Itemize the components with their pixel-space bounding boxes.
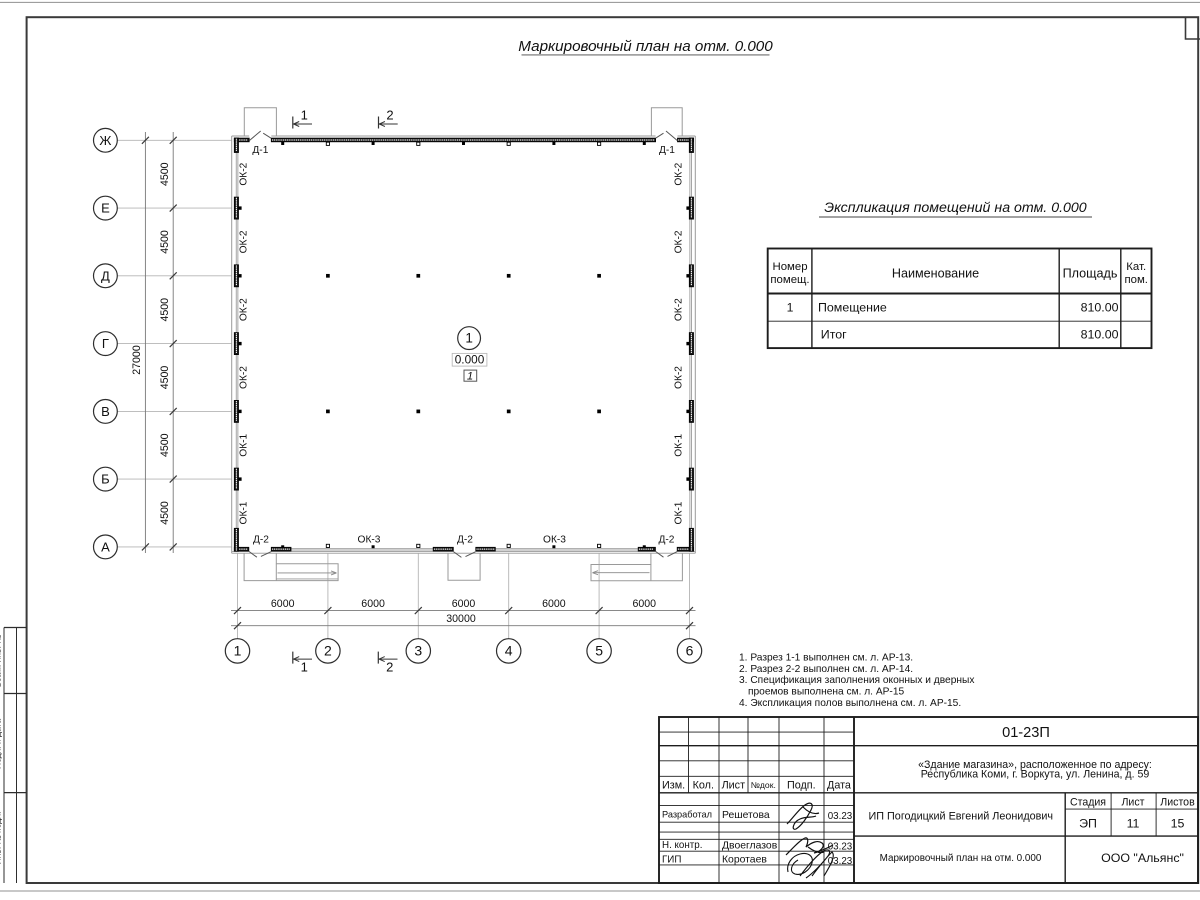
svg-text:4: 4 xyxy=(505,643,513,659)
svg-text:ОК-2: ОК-2 xyxy=(673,298,684,321)
svg-text:Д-2: Д-2 xyxy=(659,535,675,546)
svg-text:ОК-1: ОК-1 xyxy=(238,433,249,456)
svg-text:ЭП: ЭП xyxy=(1079,817,1097,831)
svg-text:Изм.: Изм. xyxy=(662,780,685,792)
svg-text:Номер: Номер xyxy=(772,261,807,273)
svg-text:810.00: 810.00 xyxy=(1081,328,1119,342)
svg-text:Д-1: Д-1 xyxy=(659,145,675,156)
svg-text:6000: 6000 xyxy=(271,598,295,610)
svg-text:2: 2 xyxy=(386,660,393,675)
svg-text:помещ.: помещ. xyxy=(770,274,809,286)
svg-text:пом.: пом. xyxy=(1124,274,1148,286)
svg-text:Итог: Итог xyxy=(821,328,847,342)
svg-text:810.00: 810.00 xyxy=(1081,301,1119,315)
svg-text:1: 1 xyxy=(467,371,473,383)
svg-text:Маркировочный план на отм. 0.0: Маркировочный план на отм. 0.000 xyxy=(880,853,1042,864)
svg-text:ОК-2: ОК-2 xyxy=(673,230,684,253)
svg-text:5: 5 xyxy=(595,643,603,659)
svg-text:Д-1: Д-1 xyxy=(252,145,268,156)
svg-text:ОК-2: ОК-2 xyxy=(238,366,249,389)
svg-text:4500: 4500 xyxy=(159,230,171,254)
svg-text:4500: 4500 xyxy=(159,501,171,525)
svg-text:1: 1 xyxy=(465,331,473,346)
svg-text:03.23: 03.23 xyxy=(828,811,853,822)
svg-text:Подп. и дата: Подп. и дата xyxy=(0,719,2,769)
svg-text:проемов выполнена см. л. АР-15: проемов выполнена см. л. АР-15 xyxy=(748,687,904,698)
svg-text:11: 11 xyxy=(1127,817,1140,831)
svg-text:Помещение: Помещение xyxy=(818,301,887,315)
svg-text:ОК-2: ОК-2 xyxy=(238,230,249,253)
svg-text:Инв. № подл.: Инв. № подл. xyxy=(0,812,2,865)
svg-text:Дата: Дата xyxy=(827,780,851,792)
svg-text:Коротаев: Коротаев xyxy=(722,855,767,866)
svg-text:ОК-1: ОК-1 xyxy=(673,433,684,456)
svg-text:2: 2 xyxy=(324,643,332,659)
svg-text:1: 1 xyxy=(301,660,308,675)
svg-text:ООО "Альянс": ООО "Альянс" xyxy=(1101,851,1184,865)
svg-text:Стадия: Стадия xyxy=(1070,797,1106,809)
svg-text:Лист: Лист xyxy=(722,780,746,792)
svg-text:1: 1 xyxy=(301,107,308,122)
svg-text:Маркировочный план на отм. 0.0: Маркировочный план на отм. 0.000 xyxy=(518,38,773,55)
svg-text:6: 6 xyxy=(686,643,694,659)
svg-text:Н. контр.: Н. контр. xyxy=(662,840,702,851)
svg-text:Д-2: Д-2 xyxy=(253,535,269,546)
svg-text:2: 2 xyxy=(386,107,393,122)
svg-text:Лист: Лист xyxy=(1121,797,1144,809)
svg-text:3. Спецификация заполнения око: 3. Спецификация заполнения оконных и две… xyxy=(739,674,974,686)
svg-text:4. Экспликация полов выполнена: 4. Экспликация полов выполнена см. л. АР… xyxy=(739,698,961,709)
svg-text:Ж: Ж xyxy=(99,133,111,148)
svg-text:ОК-1: ОК-1 xyxy=(238,501,249,524)
svg-text:ГИП: ГИП xyxy=(662,855,681,866)
svg-text:6000: 6000 xyxy=(452,598,476,610)
svg-text:6000: 6000 xyxy=(542,598,566,610)
svg-text:4500: 4500 xyxy=(159,433,171,457)
svg-text:Д: Д xyxy=(101,268,110,283)
svg-text:01-23П: 01-23П xyxy=(1002,725,1050,741)
svg-text:Наименование: Наименование xyxy=(892,267,979,281)
svg-text:3: 3 xyxy=(414,643,422,659)
svg-text:4500: 4500 xyxy=(159,162,171,186)
svg-text:03.23: 03.23 xyxy=(828,842,853,853)
svg-text:ОК-2: ОК-2 xyxy=(673,366,684,389)
svg-text:Б: Б xyxy=(101,472,110,487)
svg-text:27000: 27000 xyxy=(131,345,143,375)
svg-text:ИП Погодицкий Евгений Леонидов: ИП Погодицкий Евгений Леонидович xyxy=(869,810,1054,822)
svg-text:№док.: №док. xyxy=(751,780,776,790)
svg-text:Республика Коми, г. Воркута, у: Республика Коми, г. Воркута, ул. Ленина,… xyxy=(921,768,1150,780)
svg-text:Экспликация помещений на отм.: Экспликация помещений на отм. 0.000 xyxy=(824,200,1087,216)
svg-text:ОК-3: ОК-3 xyxy=(543,535,566,546)
svg-text:Е: Е xyxy=(101,201,110,216)
svg-text:1. Разрез 1-1 выполнен см. л.: 1. Разрез 1-1 выполнен см. л. АР-13. xyxy=(739,652,913,663)
svg-text:Кол.: Кол. xyxy=(693,780,714,792)
svg-text:1: 1 xyxy=(234,643,242,659)
svg-text:А: А xyxy=(101,540,110,555)
svg-text:4500: 4500 xyxy=(159,366,171,390)
svg-text:Двоеглазов: Двоеглазов xyxy=(722,841,778,852)
svg-text:6000: 6000 xyxy=(361,598,385,610)
svg-text:ОК-2: ОК-2 xyxy=(238,162,249,185)
svg-text:0.000: 0.000 xyxy=(455,352,485,366)
svg-text:Г: Г xyxy=(102,336,109,351)
svg-text:В: В xyxy=(101,404,110,419)
svg-text:Д-2: Д-2 xyxy=(457,535,473,546)
svg-text:Разработал: Разработал xyxy=(662,810,712,820)
svg-text:ОК-3: ОК-3 xyxy=(358,535,381,546)
svg-text:2. Разрез 2-2 выполнен см. л.: 2. Разрез 2-2 выполнен см. л. АР-14. xyxy=(739,664,913,675)
svg-text:15: 15 xyxy=(1171,817,1185,831)
svg-text:ОК-2: ОК-2 xyxy=(238,298,249,321)
svg-text:ОК-2: ОК-2 xyxy=(673,162,684,185)
svg-text:4500: 4500 xyxy=(159,298,171,322)
svg-text:Площадь: Площадь xyxy=(1063,267,1118,281)
svg-text:Решетова: Решетова xyxy=(722,810,770,821)
svg-text:1: 1 xyxy=(787,301,794,315)
svg-text:Кат.: Кат. xyxy=(1126,261,1146,273)
svg-text:ОК-1: ОК-1 xyxy=(673,501,684,524)
svg-text:Подп.: Подп. xyxy=(787,780,816,792)
svg-text:Листов: Листов xyxy=(1160,797,1195,809)
svg-text:6000: 6000 xyxy=(633,598,657,610)
svg-text:Взам. инв. №: Взам. инв. № xyxy=(0,635,2,688)
svg-text:30000: 30000 xyxy=(446,613,476,625)
